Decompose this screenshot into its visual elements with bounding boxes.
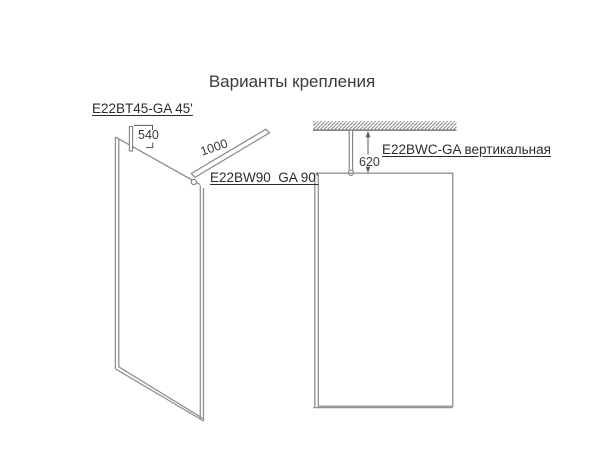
diagram-canvas: Варианты крепления E22BT45-GA 45' 540 10… [0, 0, 600, 466]
label-bracket-45: E22BT45-GA 45' [92, 102, 193, 117]
ceiling-hatch [313, 121, 457, 130]
dim-620-value: 620 [359, 156, 380, 169]
left-glass-panel [115, 137, 203, 421]
label-bracket-90: E22BW90 GA 90' [210, 171, 318, 186]
label-vertical: E22BWC-GA вертикальная [382, 143, 551, 158]
wall-bracket-45-bar [129, 127, 132, 152]
right-glass-panel [313, 173, 453, 407]
dim-540-value: 540 [138, 129, 159, 142]
page-title: Варианты крепления [209, 72, 375, 92]
mounting-diagram [0, 0, 600, 466]
brace-connector [191, 179, 196, 184]
support-rod [349, 130, 352, 172]
